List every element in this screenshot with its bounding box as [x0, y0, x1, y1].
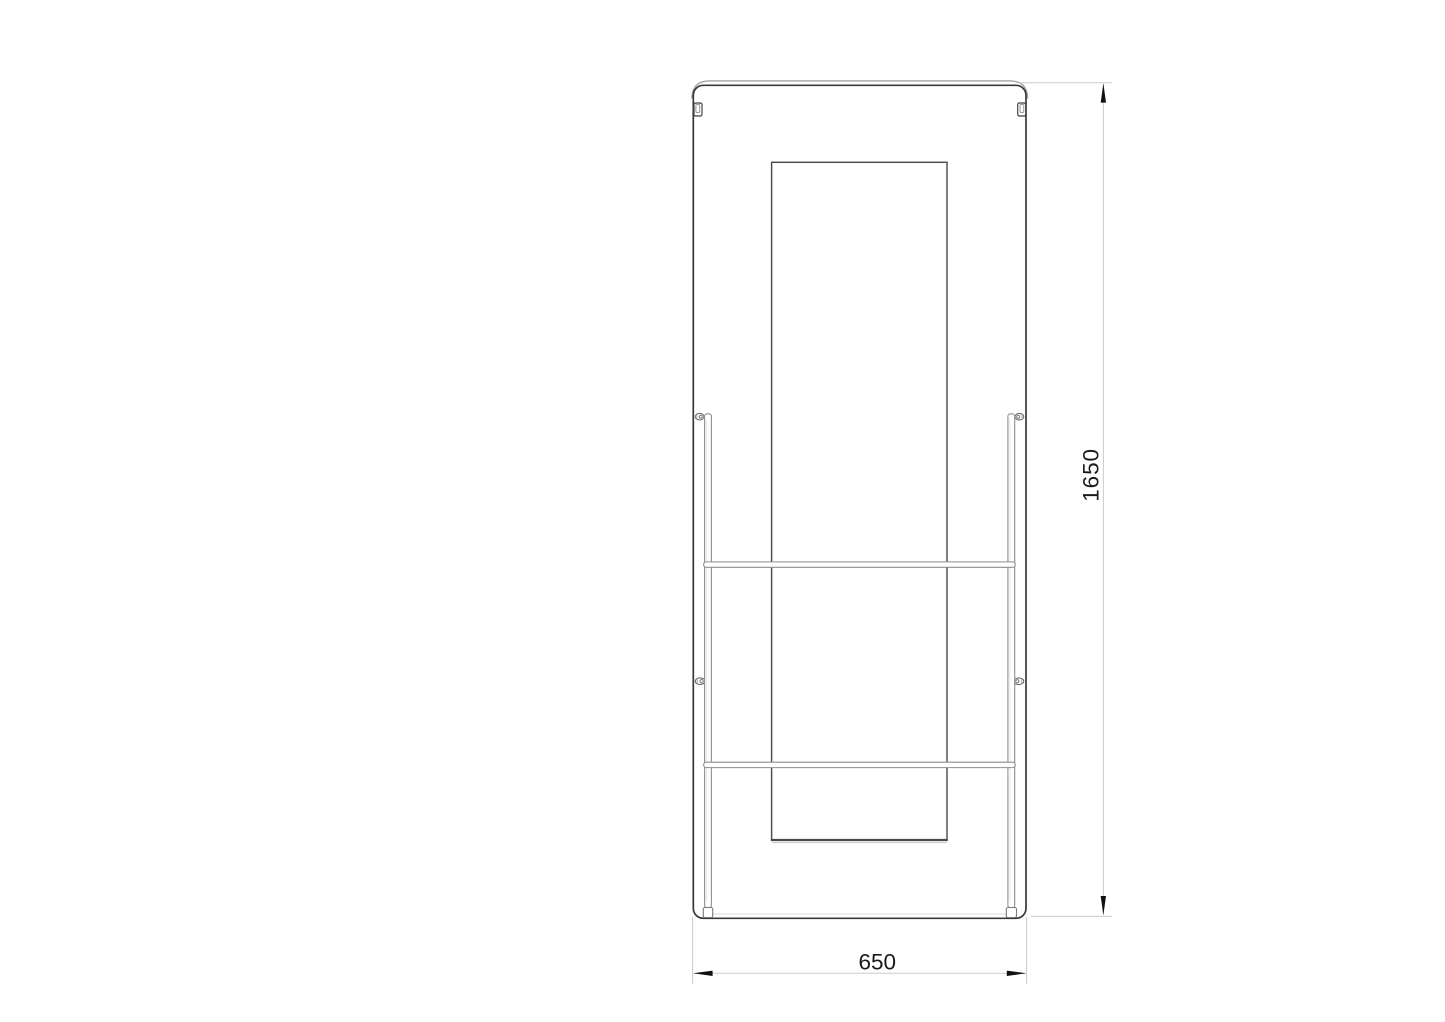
svg-text:650: 650 [859, 949, 897, 974]
svg-text:1650: 1650 [1078, 448, 1103, 502]
